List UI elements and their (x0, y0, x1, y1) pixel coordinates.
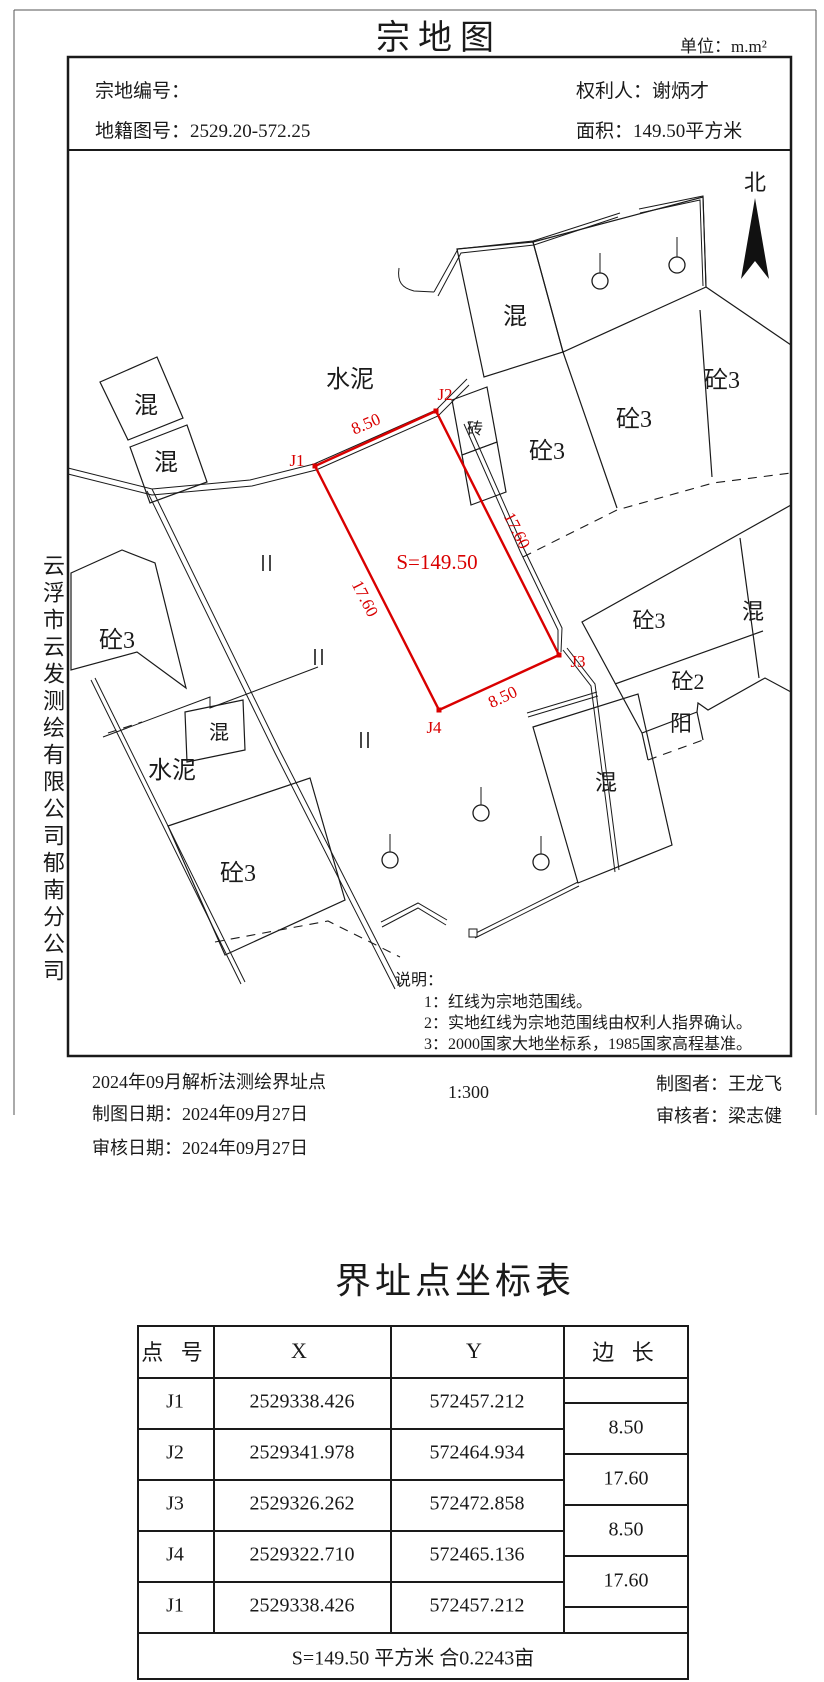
edge-length: 8.50 (609, 1417, 644, 1440)
draw-date: 制图日期：2024年09月27日 (92, 1100, 308, 1126)
survey-method-note: 2024年09月解析法测绘界址点 (92, 1068, 326, 1094)
table-row-x: 2529341.978 (250, 1442, 355, 1465)
svg-text:水泥: 水泥 (148, 757, 196, 784)
table-row-y: 572465.136 (430, 1544, 525, 1567)
table-row-y: 572457.212 (430, 1595, 525, 1618)
edge-length: 17.60 (604, 1468, 649, 1491)
edge-length: 17.60 (604, 1570, 649, 1593)
point-label-j4: J4 (426, 718, 442, 737)
point-label-j3: J3 (570, 652, 585, 671)
map-scale: 1:300 (448, 1082, 489, 1103)
svg-text:混: 混 (742, 599, 764, 624)
svg-text:混: 混 (209, 721, 229, 744)
drafter: 制图者：王龙飞 (656, 1070, 782, 1096)
table-row-x: 2529338.426 (250, 1595, 355, 1618)
table-row-pt: J3 (166, 1493, 184, 1516)
svg-text:砼3: 砼3 (220, 860, 256, 887)
table-row-pt: J1 (166, 1595, 184, 1618)
page-title: 宗地图 (376, 10, 502, 59)
notes-heading: 说明： (395, 966, 443, 990)
svg-text:混: 混 (154, 449, 178, 476)
parcel-area-label: S=149.50 (396, 550, 477, 574)
note-3: 3：2000国家大地坐标系，1985国家高程基准。 (424, 1030, 752, 1054)
point-label-j2: J2 (437, 385, 452, 404)
unit-label: 单位：m.m² (680, 32, 767, 57)
svg-text:混: 混 (503, 303, 527, 330)
reviewer: 审核者：梁志健 (656, 1102, 782, 1128)
table-title: 界址点坐标表 (335, 1252, 575, 1304)
table-row-pt: J1 (166, 1391, 184, 1414)
svg-text:砖: 砖 (467, 420, 483, 438)
svg-text:砼3: 砼3 (616, 406, 652, 433)
table-row-pt: J2 (166, 1442, 184, 1465)
coordinate-table: 点 号 X Y 边 长 J1 2529338.426 572457.212 J2… (137, 1325, 689, 1680)
parcel-annotations: J1 J2 J3 J4 8.50 17.60 17.60 8.50 S=149.… (289, 385, 585, 737)
north-arrow-icon (741, 198, 769, 279)
table-row-x: 2529322.710 (250, 1544, 355, 1567)
edge-length: 8.50 (609, 1519, 644, 1542)
svg-text:砼3: 砼3 (704, 367, 740, 394)
table-row-y: 572472.858 (430, 1493, 525, 1516)
review-date: 审核日期：2024年09月27日 (92, 1134, 308, 1160)
buildings (71, 197, 791, 955)
svg-text:砼3: 砼3 (632, 608, 665, 633)
field-owner: 权利人：谢炳才 (576, 76, 709, 103)
svg-text:砼3: 砼3 (529, 438, 565, 465)
table-row-pt: J4 (166, 1544, 184, 1567)
table-row-y: 572457.212 (430, 1391, 525, 1414)
material-labels: 水泥 混 砼3 砼3 砼3 砖 砼3 混 砼2 阳 混 混 混 砼3 水泥 混 … (99, 303, 764, 887)
col-header-x: X (291, 1338, 313, 1364)
svg-text:水泥: 水泥 (326, 366, 374, 393)
svg-text:砼2: 砼2 (671, 669, 704, 694)
parcel-map-sheet: { "sheet": { "title": "宗地图", "unit": "单位… (0, 0, 824, 1682)
dim-top: 8.50 (348, 409, 383, 438)
col-header-y: Y (466, 1338, 488, 1364)
field-cadastral-no: 地籍图号：2529.20-572.25 (95, 116, 310, 143)
col-header-point: 点 号 (141, 1335, 209, 1367)
field-parcel-no: 宗地编号： (95, 76, 190, 103)
table-row-x: 2529326.262 (250, 1493, 355, 1516)
svg-text:混: 混 (134, 392, 158, 419)
point-label-j1: J1 (289, 451, 304, 470)
svg-text:阳: 阳 (670, 711, 692, 736)
field-area: 面积：149.50平方米 (576, 116, 742, 143)
svg-text:砼3: 砼3 (99, 627, 135, 654)
col-header-edge: 边 长 (592, 1335, 660, 1367)
table-summary: S=149.50 平方米 合0.2243亩 (292, 1642, 534, 1671)
company-name: 云浮市云发测绘有限公司郁南分公司 (36, 554, 68, 986)
table-row-y: 572464.934 (430, 1442, 525, 1465)
north-label: 北 (744, 170, 766, 195)
svg-text:混: 混 (595, 770, 617, 795)
table-row-x: 2529338.426 (250, 1391, 355, 1414)
dim-left: 17.60 (348, 577, 382, 620)
